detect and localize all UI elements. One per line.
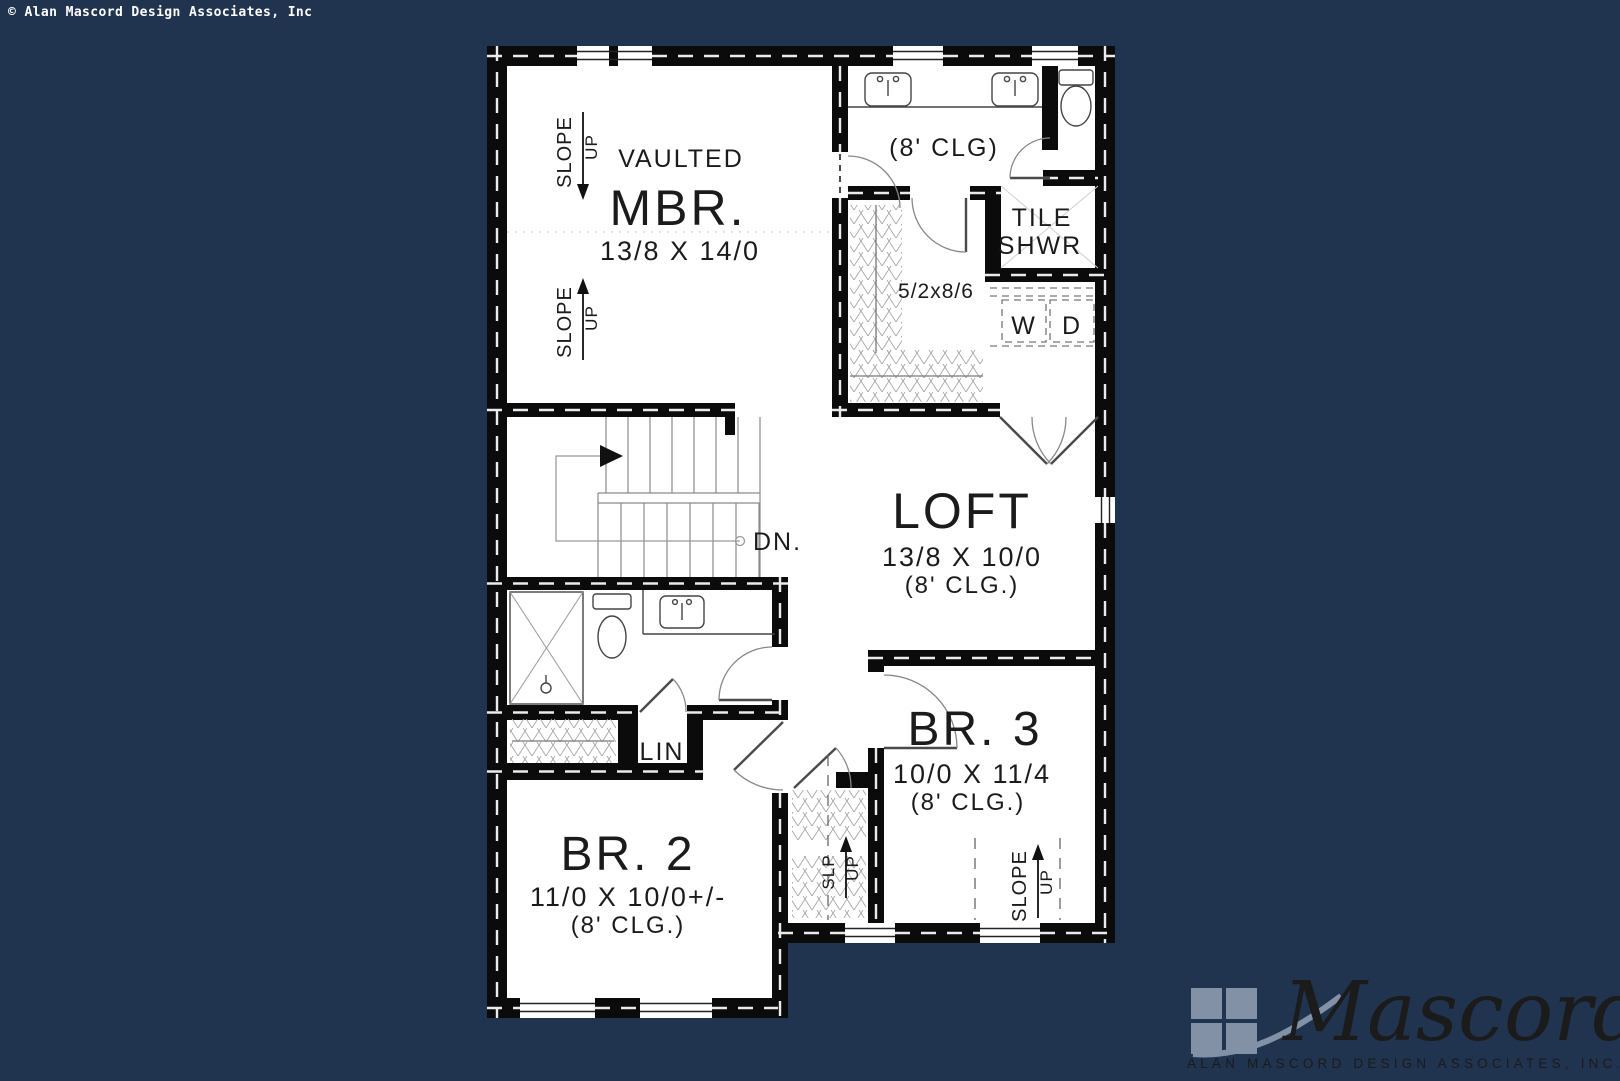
slp-label: SLP — [819, 854, 838, 889]
slope-up-label: UP — [582, 305, 601, 331]
slope-label: SLOPE — [1009, 850, 1031, 922]
slope-up-label: UP — [1037, 869, 1056, 895]
br3-name: BR. 3 — [907, 703, 1042, 756]
linen-label: LIN — [640, 738, 685, 766]
br2-dims: 11/0 X 10/0+/- — [530, 882, 726, 912]
dryer-label: D — [1062, 312, 1082, 340]
stairs-down-label: DN. — [753, 528, 802, 556]
mbr-name: MBR. — [610, 180, 747, 236]
logo-script-text: Mascord — [1281, 965, 1620, 1060]
loft-name: LOFT — [892, 483, 1032, 539]
logo-subtitle: ALAN MASCORD DESIGN ASSOCIATES, INC. — [1187, 1056, 1620, 1071]
mbr-dims: 13/8 X 14/0 — [600, 236, 760, 266]
br2-ceiling: (8' CLG.) — [571, 912, 686, 939]
slope-label: SLOPE — [554, 116, 576, 188]
mbr-vaulted-label: VAULTED — [618, 145, 744, 173]
mascord-logo: Mascord ALAN MASCORD DESIGN ASSOCIATES, … — [1183, 948, 1620, 1081]
floor-plan: DN. — [0, 0, 1620, 1080]
slope-up-label: UP — [582, 134, 601, 160]
br3-ceiling: (8' CLG.) — [911, 789, 1026, 816]
loft-ceiling: (8' CLG.) — [905, 572, 1020, 599]
walk-in-closet-dims: 5/2x8/6 — [898, 280, 974, 303]
br3-dims: 10/0 X 11/4 — [893, 759, 1051, 789]
br2-name: BR. 2 — [560, 828, 695, 881]
loft-dims: 13/8 X 10/0 — [882, 542, 1042, 572]
tile-shower-label-2: SHWR — [998, 232, 1082, 260]
slope-label: SLOPE — [554, 286, 576, 358]
toilet-icon — [593, 594, 631, 609]
slp-up-label: UP — [843, 855, 862, 881]
bath-ceiling-label: (8' CLG) — [889, 134, 999, 162]
toilet-icon — [1059, 70, 1093, 85]
logo-window-icon — [1191, 988, 1257, 1054]
tile-shower-label-1: TILE — [1012, 204, 1073, 232]
washer-label: W — [1011, 312, 1037, 340]
